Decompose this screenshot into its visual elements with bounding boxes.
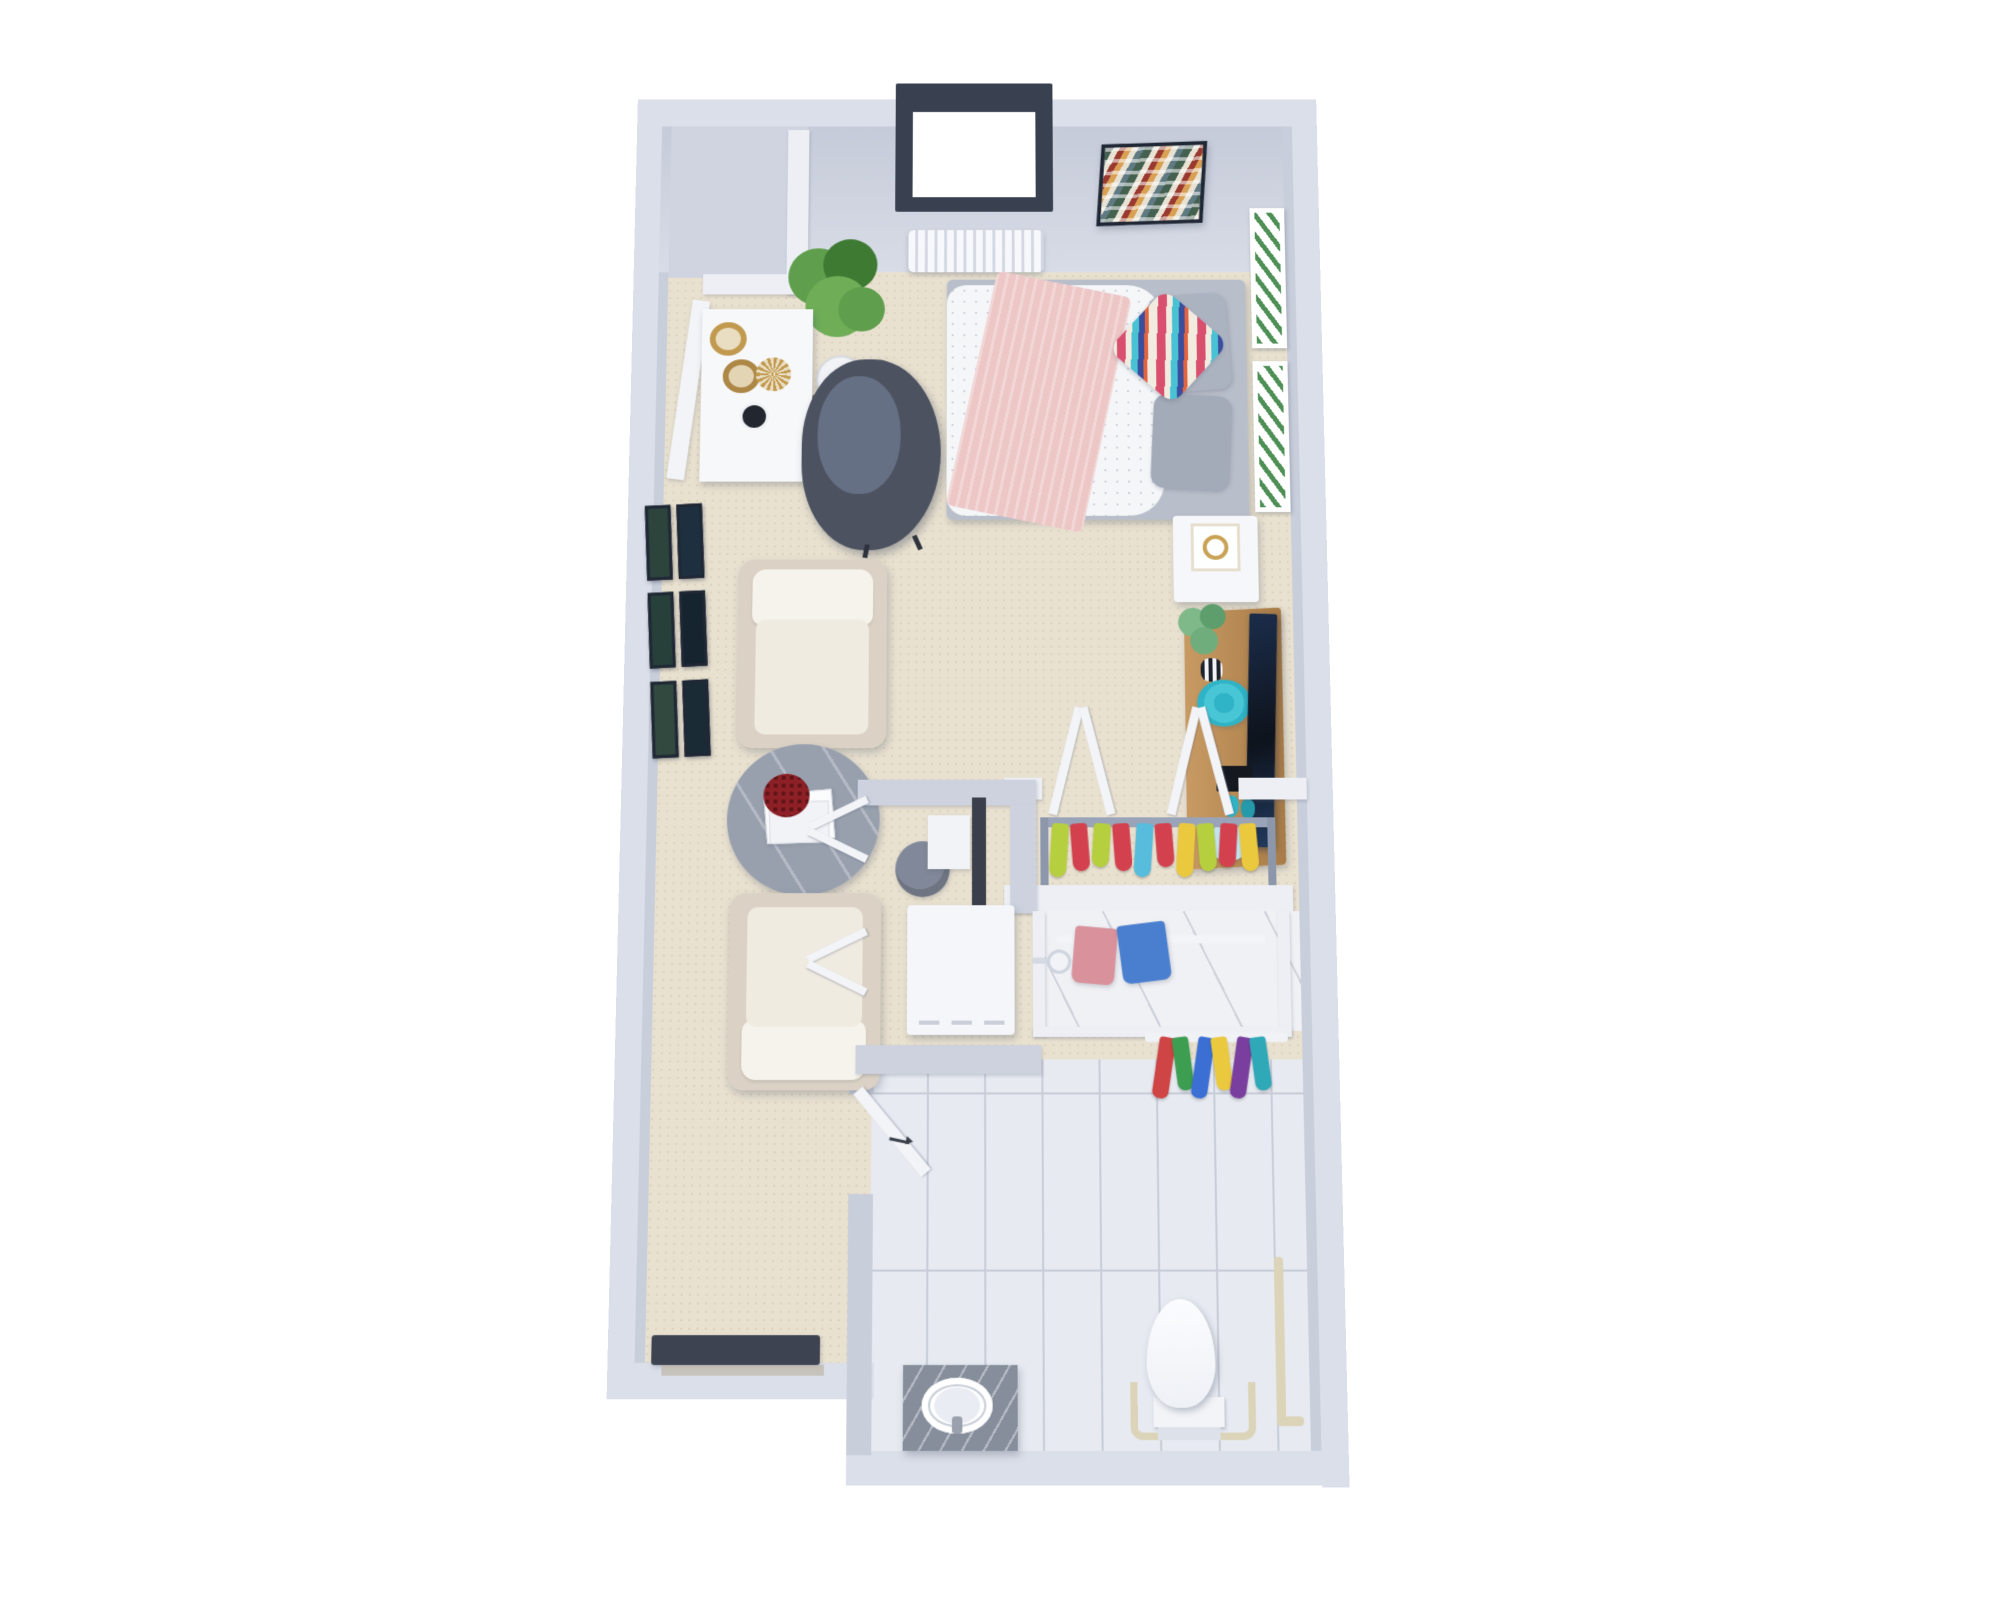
toilet-base (1158, 1427, 1221, 1440)
shower-partition-right (1277, 911, 1292, 1035)
chair-back-cushion (752, 569, 873, 625)
chevron-wall-art (1096, 141, 1207, 226)
utility-wall-bottom (855, 1045, 1041, 1074)
closet-side-rail (1040, 817, 1048, 891)
wall-grab-bar-elbow (1277, 1416, 1304, 1426)
hanging-garment (1176, 823, 1196, 878)
brass-basket (722, 359, 760, 393)
hanging-clothes (1050, 823, 1272, 883)
utility-dark-panel (972, 797, 986, 907)
door-panel (1196, 706, 1234, 815)
gallery-frame (650, 681, 678, 759)
chair-back-cushion (741, 1021, 866, 1080)
hanging-garment (1239, 823, 1260, 872)
gallery-frame (682, 679, 711, 757)
hanging-garment (1112, 823, 1133, 872)
closet-front-stub-right (1238, 778, 1307, 800)
botanical-print (1249, 208, 1287, 348)
window (895, 83, 1053, 212)
washer-drawer-line (984, 1021, 1004, 1025)
monstera-pot (1200, 658, 1222, 681)
hanging-garment (1091, 823, 1111, 868)
gallery-frame (645, 505, 673, 581)
lamp-gold-ring (1203, 535, 1229, 560)
utility-wall-right (1010, 805, 1037, 913)
nightstand (1173, 516, 1259, 602)
door-panel (806, 960, 868, 996)
door-panel (1167, 706, 1201, 815)
hanging-garment (1154, 823, 1175, 868)
toilet-lid (1146, 1299, 1216, 1408)
red-flowers (763, 774, 810, 818)
striped-towel (1249, 1036, 1273, 1091)
hanging-garment (1218, 823, 1237, 868)
cream-armchair-top (736, 560, 887, 748)
plant-leaves (838, 287, 885, 331)
monstera-plant (1176, 604, 1237, 685)
floor-plan (604, 94, 1349, 1488)
window-glass (913, 112, 1036, 197)
gray-pillow (1150, 393, 1232, 491)
hanging-garment (1049, 823, 1070, 878)
woven-sphere (756, 358, 792, 392)
door-panel (806, 928, 868, 964)
hanging-garment (1070, 823, 1091, 872)
black-cup (739, 402, 769, 430)
entry-threshold (661, 1365, 824, 1376)
monstera-leaf (1200, 604, 1226, 629)
gallery-frame (679, 591, 707, 668)
closet-bifold-door (1159, 697, 1243, 819)
door-panel (1048, 706, 1083, 815)
door-panel (1079, 706, 1116, 815)
closet-bifold-door (1042, 697, 1125, 819)
chair-seat-cushion (754, 619, 869, 734)
door-panel (807, 828, 868, 863)
gallery-frame (676, 503, 704, 579)
hanging-garment (1196, 823, 1217, 872)
toilet (1129, 1299, 1258, 1451)
utility-wall-top (858, 780, 1037, 806)
wall-bathroom-left-lower (846, 1194, 873, 1455)
vanity-counter (903, 1365, 1018, 1451)
utility-cabinet (928, 815, 970, 869)
radiator (908, 230, 1043, 272)
monstera-leaf (1190, 627, 1218, 654)
gallery-frame (648, 592, 676, 669)
blue-towel (1116, 921, 1172, 985)
wall-bottom-bathroom (846, 1451, 1350, 1486)
utility-open-door (809, 796, 880, 886)
armchair-seat-cushion (817, 376, 901, 494)
pink-towel (1071, 926, 1118, 986)
hanging-garment (1133, 823, 1153, 878)
botanical-print (1252, 361, 1290, 512)
gallery-wall (645, 503, 717, 763)
washer-drawer-line (952, 1021, 972, 1025)
door-panel (807, 796, 868, 831)
utility-open-door (807, 927, 879, 1018)
washer-drawer-line (919, 1021, 939, 1025)
desk (699, 309, 813, 481)
shower-partition-left (1033, 911, 1046, 1035)
faucet (952, 1416, 962, 1433)
closet-back-wall (1004, 885, 1293, 911)
shower-head (1047, 950, 1071, 974)
striped-towels (1155, 1037, 1287, 1105)
brass-basket (710, 322, 748, 355)
washer (907, 905, 1015, 1035)
entry-mat (651, 1335, 820, 1365)
